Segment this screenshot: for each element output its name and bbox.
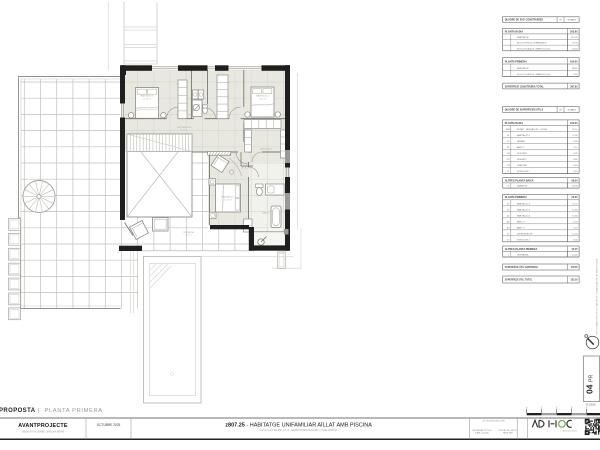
svg-text:E 1/100: E 1/100 [587, 403, 596, 407]
svg-text:26.40: 26.40 [572, 48, 578, 50]
svg-text:HABITACIÓ 4: HABITACIÓ 4 [517, 214, 531, 217]
svg-text:DISTRIBUÏDOR: DISTRIBUÏDOR [517, 232, 533, 235]
svg-text:PLANTA PRIMERA: PLANTA PRIMERA [505, 196, 527, 199]
svg-text:HABITATGE: HABITATGE [517, 36, 530, 39]
svg-text:14.20 m²: 14.20 m² [185, 233, 193, 236]
svg-text:HABITATGE: HABITATGE [517, 67, 530, 70]
svg-text:11.90 m²: 11.90 m² [143, 97, 151, 100]
svg-text:ESCALA A3: E 1/100: ESCALA A3: E 1/100 [473, 429, 493, 432]
svg-text:PROPOSTA: PROPOSTA [0, 408, 36, 414]
svg-text:VESTIDOR 1: VESTIDOR 1 [517, 171, 531, 173]
svg-text:HABITACIÓ 3: HABITACIÓ 3 [141, 95, 155, 98]
svg-text:232.50: 232.50 [571, 280, 579, 282]
svg-text:15.45: 15.45 [571, 248, 578, 251]
svg-text:SEBASTIAN LEMME / SASCHA REHM: SEBASTIAN LEMME / SASCHA REHM [22, 430, 64, 433]
svg-text:151.05: 151.05 [571, 37, 578, 39]
svg-text:HABITACIÓ 3: HABITACIÓ 3 [517, 208, 531, 211]
svg-text:ALTRES PLANTA PRIMERA: ALTRES PLANTA PRIMERA [505, 248, 538, 251]
svg-text:DISTRIBUÏDOR: DISTRIBUÏDOR [177, 126, 192, 129]
svg-text:11.85: 11.85 [572, 215, 578, 217]
svg-text:BANY 1: BANY 1 [517, 146, 526, 149]
svg-text:TERRASSA: TERRASSA [517, 254, 529, 257]
svg-text:HABITACIÓ 2: HABITACIÓ 2 [222, 196, 236, 199]
svg-text:15.20: 15.20 [572, 203, 578, 205]
svg-text:HABITACIÓ 4: HABITACIÓ 4 [256, 95, 270, 98]
svg-text:ALTRES PLANTA BAIXA: ALTRES PLANTA BAIXA [505, 179, 534, 182]
svg-text:G: G [507, 186, 509, 188]
svg-text:SUPERFÍCIE ÚTIL HABITABLE: SUPERFÍCIE ÚTIL HABITABLE [505, 266, 539, 269]
svg-text:TRASTER: TRASTER [517, 164, 528, 167]
svg-text:73.55: 73.55 [571, 196, 578, 199]
svg-text:EMC: EMC [506, 129, 511, 131]
svg-text:DP: DP [507, 159, 511, 161]
svg-text:(50%) VOLADIUS I RÀFECS (0,5): (50%) VOLADIUS I RÀFECS (0,5) [517, 47, 551, 50]
svg-text:11.90: 11.90 [572, 135, 578, 137]
svg-text:TOTALS: TOTALS [567, 109, 576, 112]
svg-text:BANY 3: BANY 3 [517, 226, 526, 229]
svg-text:102.05: 102.05 [570, 122, 578, 125]
svg-text:26.35: 26.35 [572, 43, 578, 45]
svg-text:HABITACIÓ 1: HABITACIÓ 1 [517, 134, 531, 137]
svg-text:(50%) PORXOS TERRASSES: (50%) PORXOS TERRASSES [517, 42, 547, 45]
svg-text:11.20 m²: 11.20 m² [180, 129, 188, 132]
svg-text:Nº Plànol Referència PR: Nº Plànol Referència PR [483, 420, 505, 423]
svg-text:m²: m² [559, 109, 562, 112]
svg-text:Carrer Camí del Mar, s/n, 5 -: Carrer Camí del Mar, s/n, 5 - SANTA CRIS… [260, 429, 337, 432]
svg-text:m²: m² [559, 19, 562, 22]
svg-text:VESTIDOR 2: VESTIDOR 2 [517, 239, 531, 241]
svg-text:arquitectura: arquitectura [562, 429, 577, 433]
svg-text:DESPATX: DESPATX [517, 158, 527, 161]
svg-text:TERRASSA: TERRASSA [183, 231, 194, 234]
svg-text:z807.25 - HABITATGE UNIFAMILIA: z807.25 - HABITATGE UNIFAMILIAR AÏLLAT A… [225, 421, 372, 428]
svg-text:SUPERFÍCIE ÚTIL TOTAL: SUPERFÍCIE ÚTIL TOTAL [505, 279, 533, 282]
svg-text:OCTUBRE 2025: OCTUBRE 2025 [97, 423, 121, 427]
svg-text:FASE: AVP: FASE: AVP [503, 432, 514, 435]
svg-text:VESTÍBUL: VESTÍBUL [517, 152, 528, 155]
svg-text:PLANTA BAIXA: PLANTA BAIXA [505, 122, 524, 125]
svg-text:PLANTA BAIXA: PLANTA BAIXA [505, 30, 524, 33]
svg-text:PROJECTE: z807.25: PROJECTE: z807.25 [499, 430, 519, 432]
svg-text:QUADRE DE SUPERFICIES ÚTILS: QUADRE DE SUPERFICIES ÚTILS [505, 109, 544, 112]
svg-text:178.55: 178.55 [571, 267, 579, 269]
svg-text:14.20: 14.20 [572, 255, 578, 257]
svg-text:11.85 m²: 11.85 m² [259, 97, 267, 100]
svg-text:88.45: 88.45 [572, 68, 578, 70]
svg-text:z807.25 AVANTPROJECTE HABITA: z807.25 AVANTPROJECTE HABITATGE UNIFAMIL… [596, 258, 599, 335]
svg-text:203.80: 203.80 [570, 30, 578, 33]
svg-text:15.20 m²: 15.20 m² [224, 198, 232, 201]
svg-text:56.10: 56.10 [572, 129, 578, 131]
svg-text:AVANTPROJECTE: AVANTPROJECTE [18, 423, 68, 429]
svg-text:58.05: 58.05 [571, 179, 578, 182]
svg-text:DATA: 10.2025: DATA: 10.2025 [475, 432, 489, 435]
svg-text:11.90: 11.90 [572, 209, 578, 211]
svg-text:TR: TR [507, 165, 510, 167]
svg-text:(50%) VOLADIUS I RÀFECS (0,5): (50%) VOLADIUS I RÀFECS (0,5) [517, 73, 551, 76]
svg-text:ESTAR - MENJADOR - CUINA: ESTAR - MENJADOR - CUINA [517, 128, 548, 131]
svg-text:GARATGE: GARATGE [517, 185, 528, 188]
svg-text:SUPERFÍCIE CONSTRUÏDA TOTAL: SUPERFÍCIE CONSTRUÏDA TOTAL [505, 85, 545, 88]
svg-text:TOTALS: TOTALS [567, 19, 576, 22]
svg-text:BANY 2: BANY 2 [263, 212, 270, 215]
svg-text:367.80: 367.80 [570, 85, 578, 88]
svg-text:PLANTA PRIMERA: PLANTA PRIMERA [45, 408, 103, 414]
svg-text:VESTIDOR 2: VESTIDOR 2 [260, 148, 273, 150]
svg-text:PLANTA PRIMERA: PLANTA PRIMERA [505, 60, 527, 63]
svg-text:39.35: 39.35 [572, 186, 578, 188]
svg-text:QUADRE DE SUP. CONSTRUÏDES: QUADRE DE SUP. CONSTRUÏDES [505, 19, 544, 22]
svg-text:LAVABO: LAVABO [517, 140, 526, 143]
svg-text:BANY 2: BANY 2 [517, 220, 526, 223]
svg-text:|: | [38, 408, 39, 414]
svg-text:HABITACIÓ 2: HABITACIÓ 2 [517, 202, 531, 205]
svg-text:164.00: 164.00 [570, 60, 578, 63]
svg-text:11.20: 11.20 [572, 233, 578, 235]
